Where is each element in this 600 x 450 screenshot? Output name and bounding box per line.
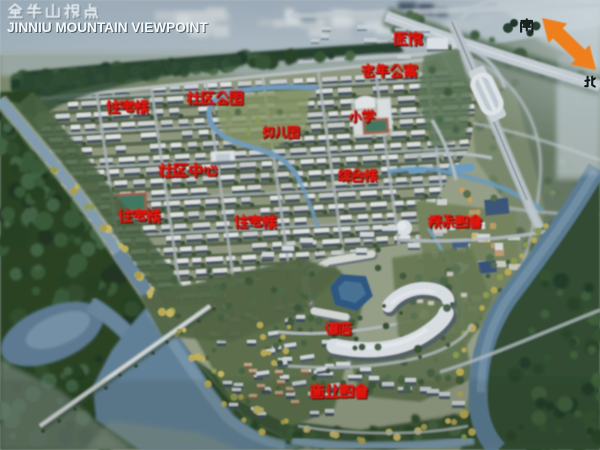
svg-text:JINNIU MOUNTAIN VIEWPOINT: JINNIU MOUNTAIN VIEWPOINT	[7, 20, 208, 35]
